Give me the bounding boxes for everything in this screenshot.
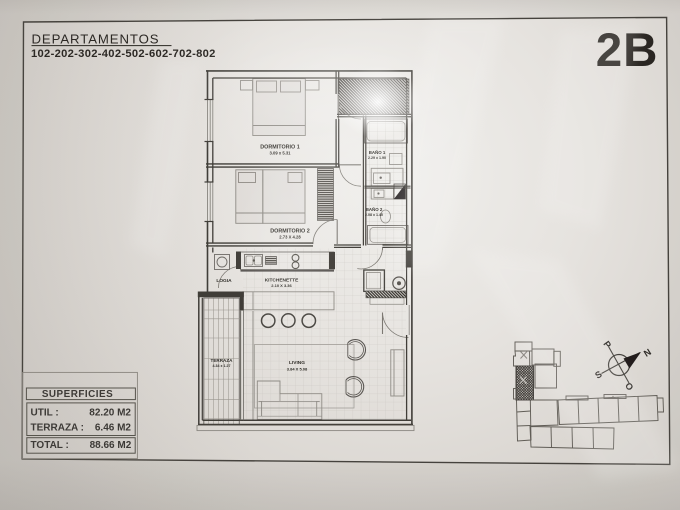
svg-text:LIVING: LIVING xyxy=(289,360,305,366)
svg-text:3.84 X 5.08: 3.84 X 5.08 xyxy=(287,367,308,372)
